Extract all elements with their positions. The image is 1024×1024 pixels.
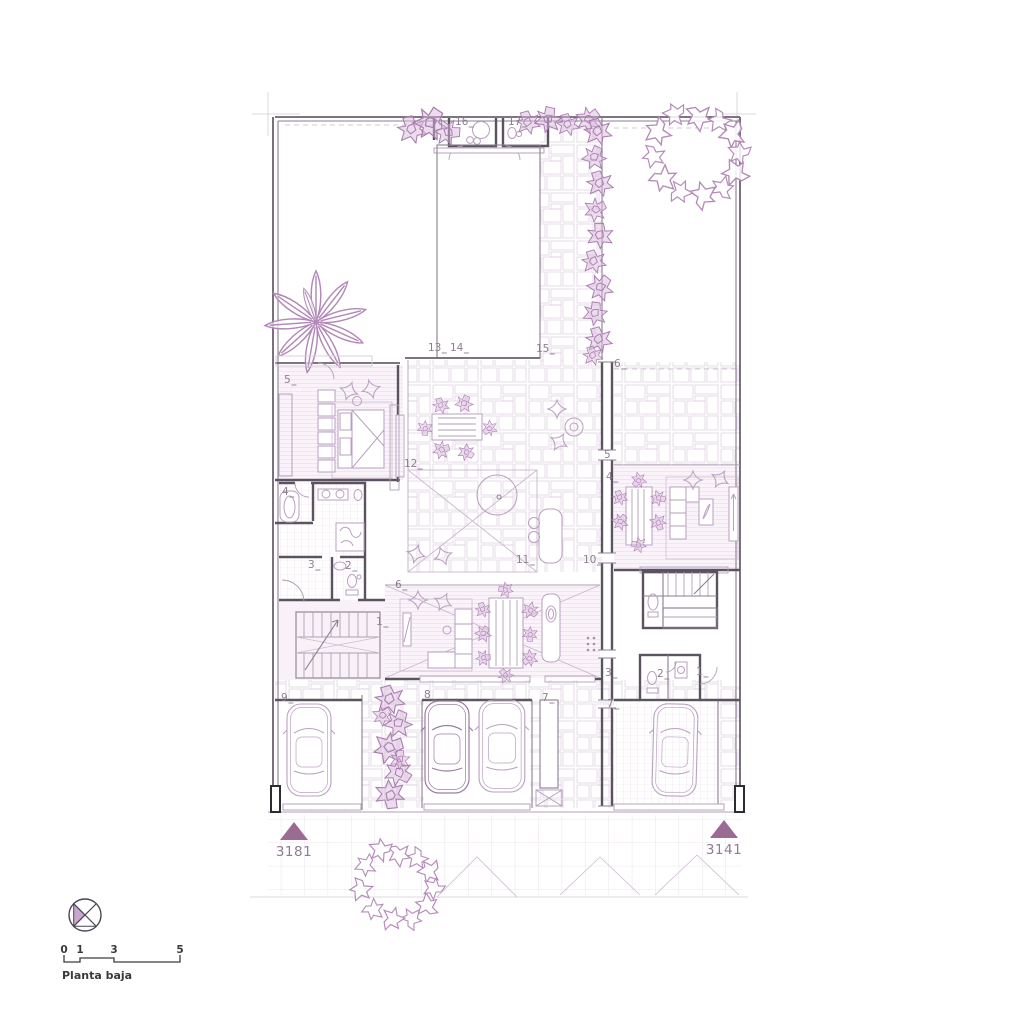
floor-plan-drawing: 3181 3141 161713141565124543211106132198… <box>0 0 1024 1024</box>
staircase-right <box>643 572 717 628</box>
scale-tick-3: 3 <box>110 944 117 956</box>
room-label: 2 <box>345 560 352 572</box>
room-label: 1 <box>376 616 383 628</box>
room-label: 16 <box>455 116 469 128</box>
banana-plant <box>265 271 372 373</box>
garage-left <box>275 695 362 810</box>
north-arrow-icon <box>69 899 101 931</box>
room-label: 7 <box>542 692 549 704</box>
room-label: 7 <box>607 698 614 710</box>
room-label: 14 <box>450 342 464 354</box>
room-label: 6 <box>395 579 402 591</box>
room-label: 5 <box>284 374 291 386</box>
scale-bar: 0 1 3 5 <box>60 944 183 962</box>
room-label: 1 <box>696 666 703 678</box>
floor-plan-page: 3181 3141 161713141565124543211106132198… <box>0 0 1024 1024</box>
plant-top-yard <box>398 101 464 149</box>
room-label: 9 <box>281 692 288 704</box>
tree-canopy-top-right <box>639 102 752 211</box>
address-left: 3181 <box>276 844 312 860</box>
room-label: 12 <box>404 458 417 470</box>
room-label: 3 <box>308 559 315 571</box>
room-label: 6 <box>614 358 621 370</box>
room-label: 17 <box>508 116 521 128</box>
room-label: 4 <box>282 486 289 498</box>
room-label: 11 <box>516 554 529 566</box>
garage-middle <box>421 700 532 810</box>
room-label: 2 <box>657 668 664 680</box>
plan-title: Planta baja <box>62 969 132 982</box>
room-label: 8 <box>424 689 431 701</box>
room-label: 10 <box>583 554 596 566</box>
room-label: 15 <box>536 343 549 355</box>
address-right: 3141 <box>706 842 742 858</box>
scale-tick-5: 5 <box>176 944 183 956</box>
room-label: 5 <box>604 449 611 461</box>
room-label: 13 <box>428 342 441 354</box>
scale-tick-1: 1 <box>76 944 83 956</box>
scale-tick-0: 0 <box>60 944 67 956</box>
room-label: 4 <box>606 471 613 483</box>
room-label: 3 <box>605 667 612 679</box>
